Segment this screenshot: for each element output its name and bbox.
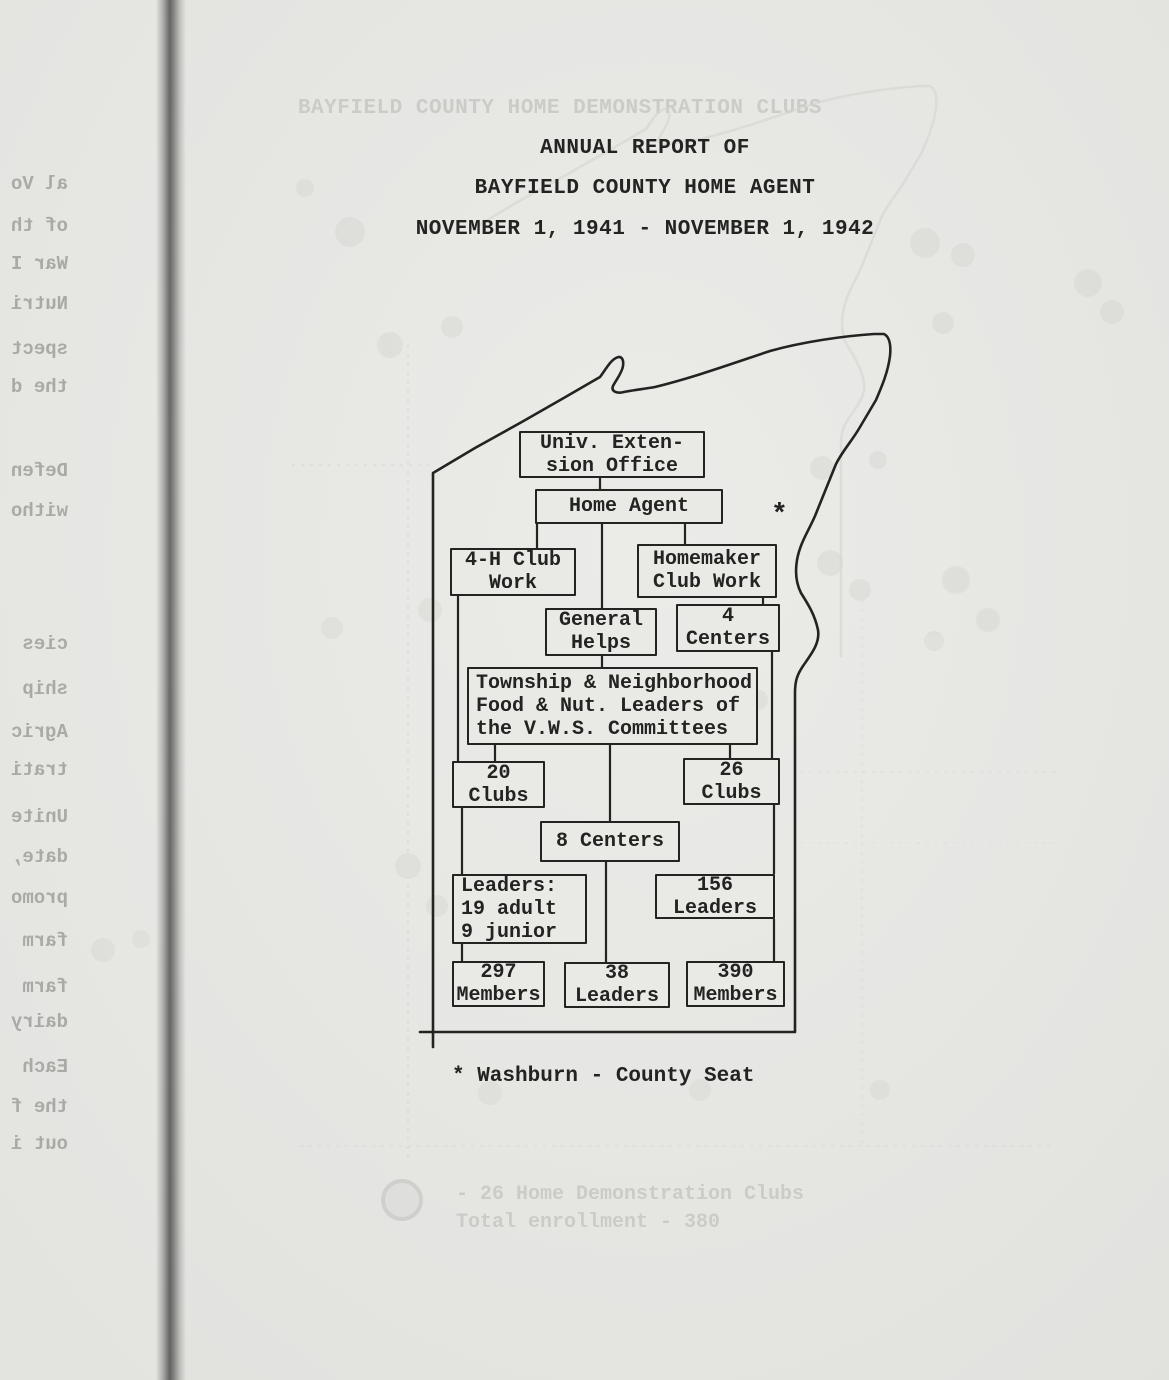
org-node-4h-club-work: 4-H Club Work xyxy=(450,548,576,596)
org-node-26-clubs: 26 Clubs xyxy=(683,758,780,805)
county-seat-asterisk: * xyxy=(771,500,788,531)
org-node-home-agent: Home Agent xyxy=(535,489,723,524)
org-node-homemaker-club-work: Homemaker Club Work xyxy=(637,544,777,598)
org-node-township-neighborhood-committee: Township & Neighborhood Food & Nut. Lead… xyxy=(467,667,758,745)
org-node-4h-leaders: Leaders: 19 adult 9 junior xyxy=(452,874,587,944)
ghost-legend-circle xyxy=(383,1181,421,1219)
org-node-390-members: 390 Members xyxy=(686,961,785,1007)
report-title-line-1: ANNUAL REPORT OF xyxy=(240,137,1050,160)
report-title-line-2: BAYFIELD COUNTY HOME AGENT xyxy=(240,177,1050,200)
org-node-156-leaders: 156 Leaders xyxy=(655,874,775,919)
org-node-8-centers: 8 Centers xyxy=(540,821,680,862)
footnote-county-seat: * Washburn - County Seat xyxy=(452,1065,754,1088)
scanned-report-page: al Vo of th War I Nutri spect the d Defe… xyxy=(0,0,1169,1380)
report-title-line-3: NOVEMBER 1, 1941 - NOVEMBER 1, 1942 xyxy=(240,218,1050,241)
org-node-297-members: 297 Members xyxy=(452,961,545,1007)
org-node-20-clubs: 20 Clubs xyxy=(452,761,545,808)
org-node-univ-extension-office: Univ. Exten- sion Office xyxy=(519,431,705,478)
org-node-general-helps: General Helps xyxy=(545,608,657,656)
org-node-4-centers: 4 Centers xyxy=(676,604,780,652)
org-node-38-leaders: 38 Leaders xyxy=(564,962,670,1008)
